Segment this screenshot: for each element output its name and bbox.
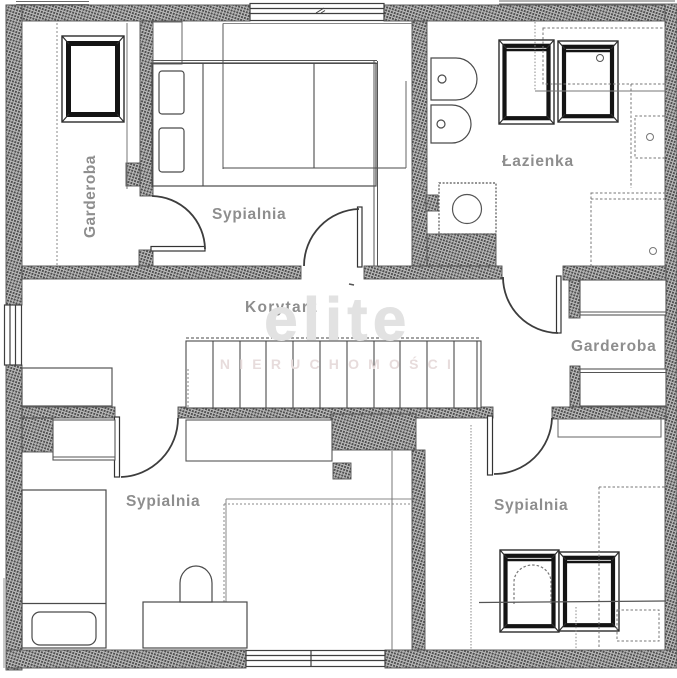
svg-text:elite: elite [264, 286, 412, 353]
svg-text:Garderoba: Garderoba [571, 338, 657, 355]
svg-text:Sypialnia: Sypialnia [126, 493, 200, 510]
svg-text:Sypialnia: Sypialnia [212, 206, 286, 223]
svg-text:NIERUCHOMOŚCI: NIERUCHOMOŚCI [220, 355, 460, 372]
svg-text:Łazienka: Łazienka [502, 153, 574, 170]
svg-text:Garderoba: Garderoba [82, 155, 99, 238]
svg-text:Sypialnia: Sypialnia [494, 497, 568, 514]
